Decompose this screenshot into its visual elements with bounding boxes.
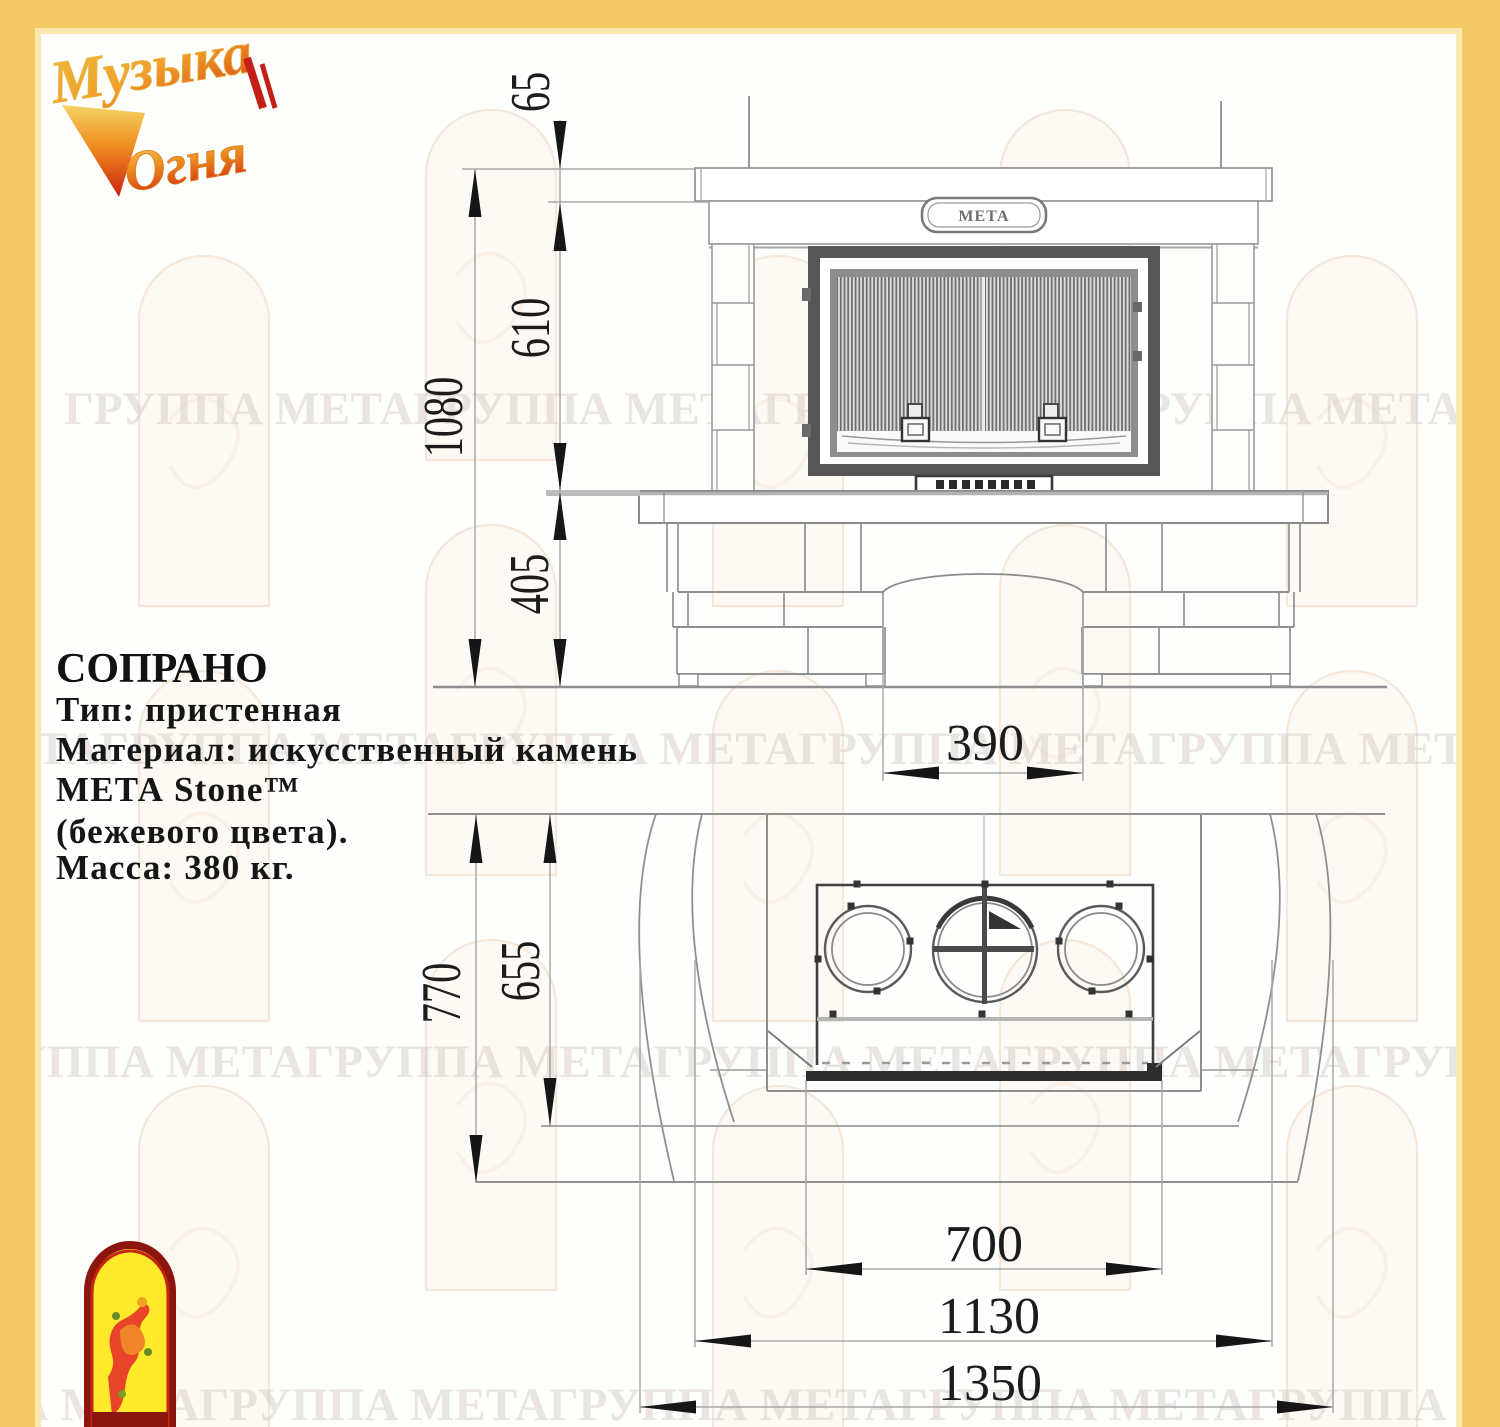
svg-text:610: 610 (500, 298, 562, 358)
svg-text:Масса: 380 кг.: Масса: 380 кг. (56, 848, 295, 887)
svg-text:655: 655 (490, 941, 552, 1001)
svg-text:СОПРАНО: СОПРАНО (56, 646, 268, 692)
svg-text:(бежевого цвета).: (бежевого цвета). (56, 812, 349, 851)
svg-text:1350: 1350 (938, 1355, 1042, 1412)
svg-text:ГРУППА МЕТАГРУППА МЕТАГРУППА М: ГРУППА МЕТАГРУППА МЕТАГРУППА МЕТАГРУППА … (64, 383, 1500, 435)
svg-text:405: 405 (499, 554, 561, 614)
svg-text:390: 390 (946, 715, 1024, 772)
svg-text:65: 65 (500, 72, 562, 112)
svg-text:700: 700 (945, 1216, 1023, 1273)
svg-text:ГРУППА МЕТАГРУППА МЕТАГРУППА М: ГРУППА МЕТАГРУППА МЕТАГРУППА МЕТАГРУППА … (0, 1379, 1500, 1427)
svg-text:Тип: пристенная: Тип: пристенная (56, 690, 342, 729)
svg-text:ГРУППА МЕТАГРУППА МЕТАГРУППА М: ГРУППА МЕТАГРУППА МЕТАГРУППА МЕТАГРУППА … (0, 1036, 1500, 1088)
svg-text:Материал: искусственный камень: Материал: искусственный камень (56, 730, 638, 769)
svg-text:МЕТА: МЕТА (958, 208, 1009, 225)
svg-text:МЕТА Stone™: МЕТА Stone™ (56, 770, 300, 809)
svg-text:770: 770 (411, 963, 473, 1023)
svg-text:1080: 1080 (413, 377, 475, 458)
svg-text:1130: 1130 (938, 1288, 1040, 1345)
